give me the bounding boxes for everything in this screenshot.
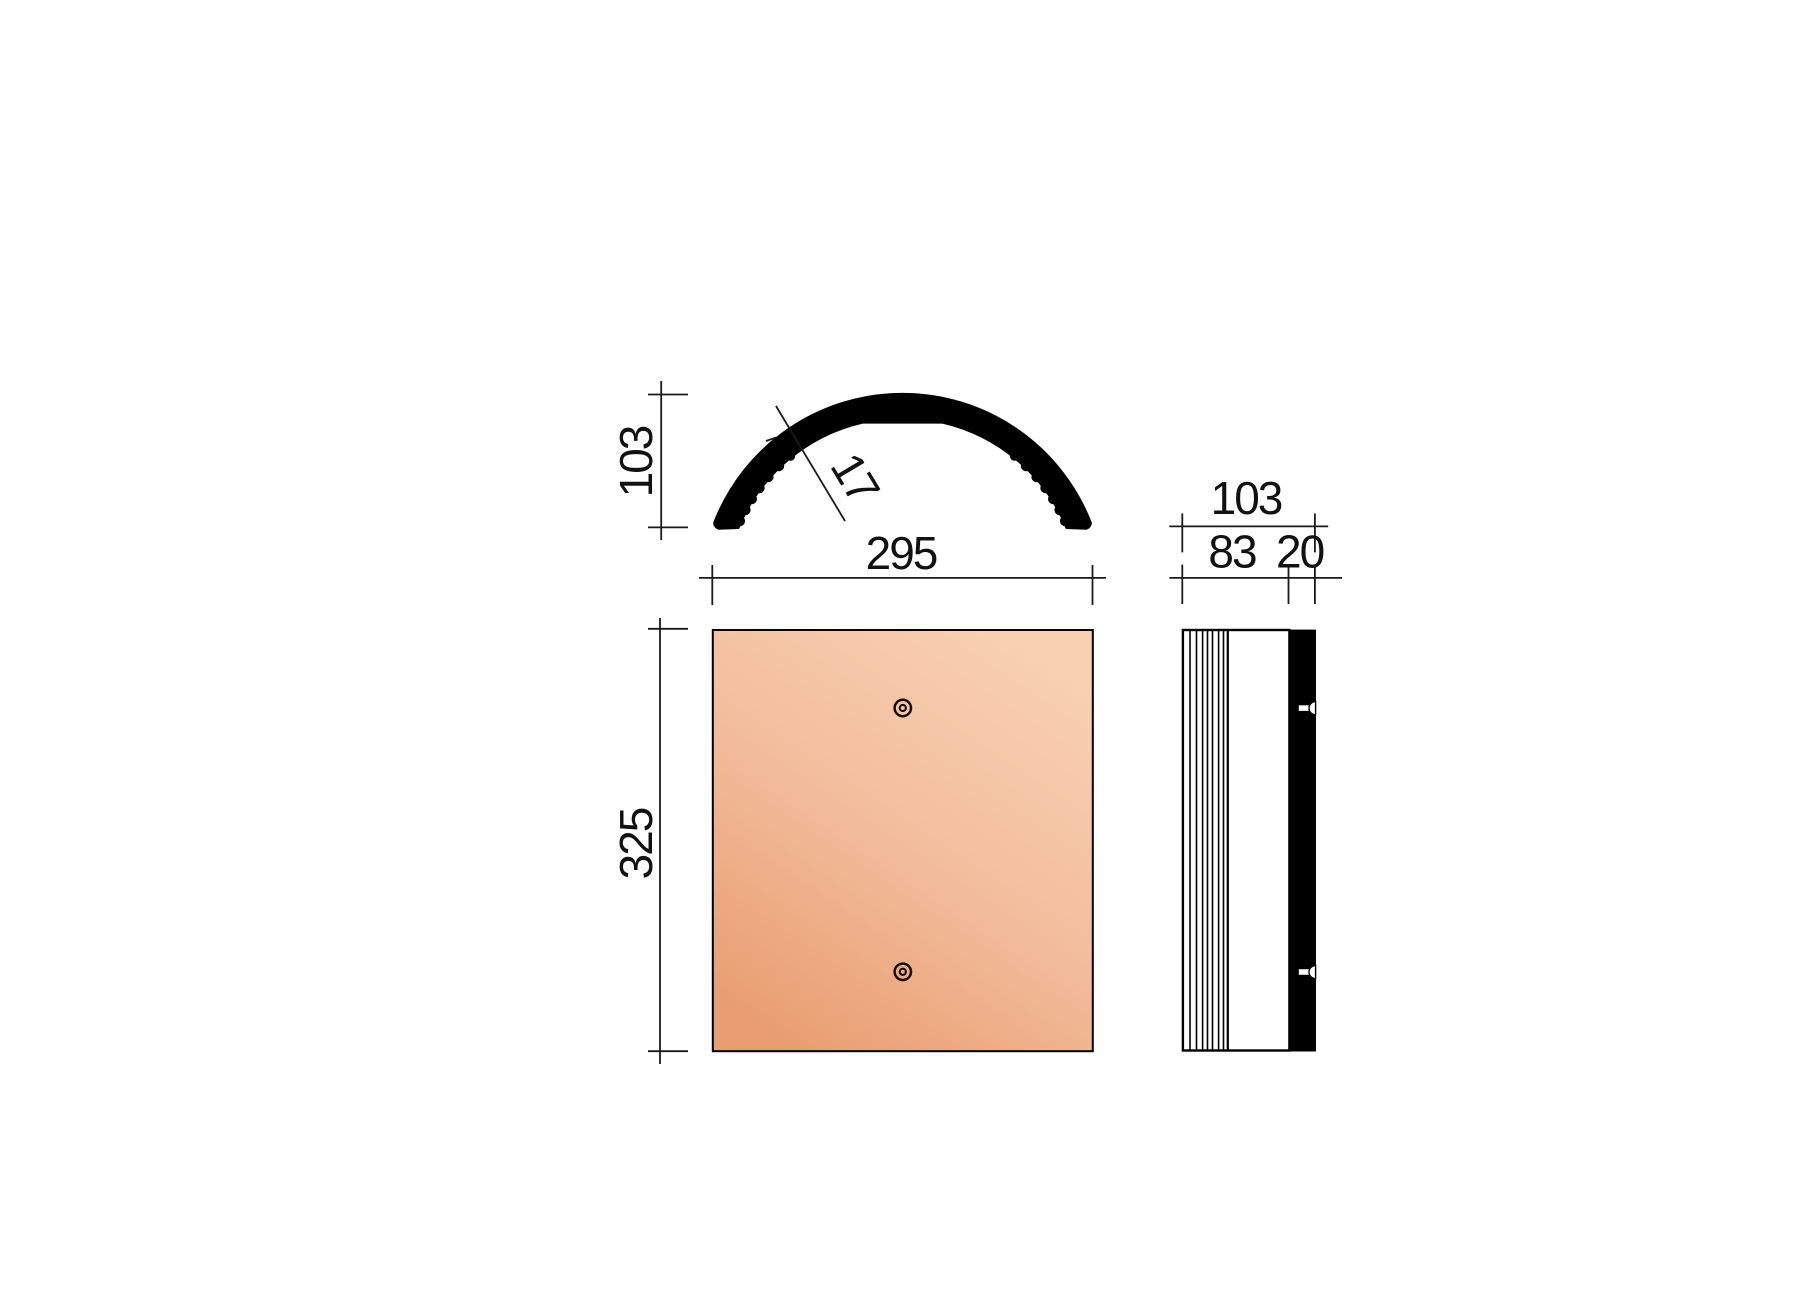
- svg-text:295: 295: [866, 527, 937, 579]
- svg-text:17: 17: [821, 444, 890, 512]
- svg-text:103: 103: [610, 426, 662, 497]
- svg-text:83: 83: [1208, 526, 1256, 578]
- svg-text:20: 20: [1276, 526, 1324, 578]
- svg-text:325: 325: [610, 808, 662, 879]
- svg-text:103: 103: [1211, 472, 1282, 524]
